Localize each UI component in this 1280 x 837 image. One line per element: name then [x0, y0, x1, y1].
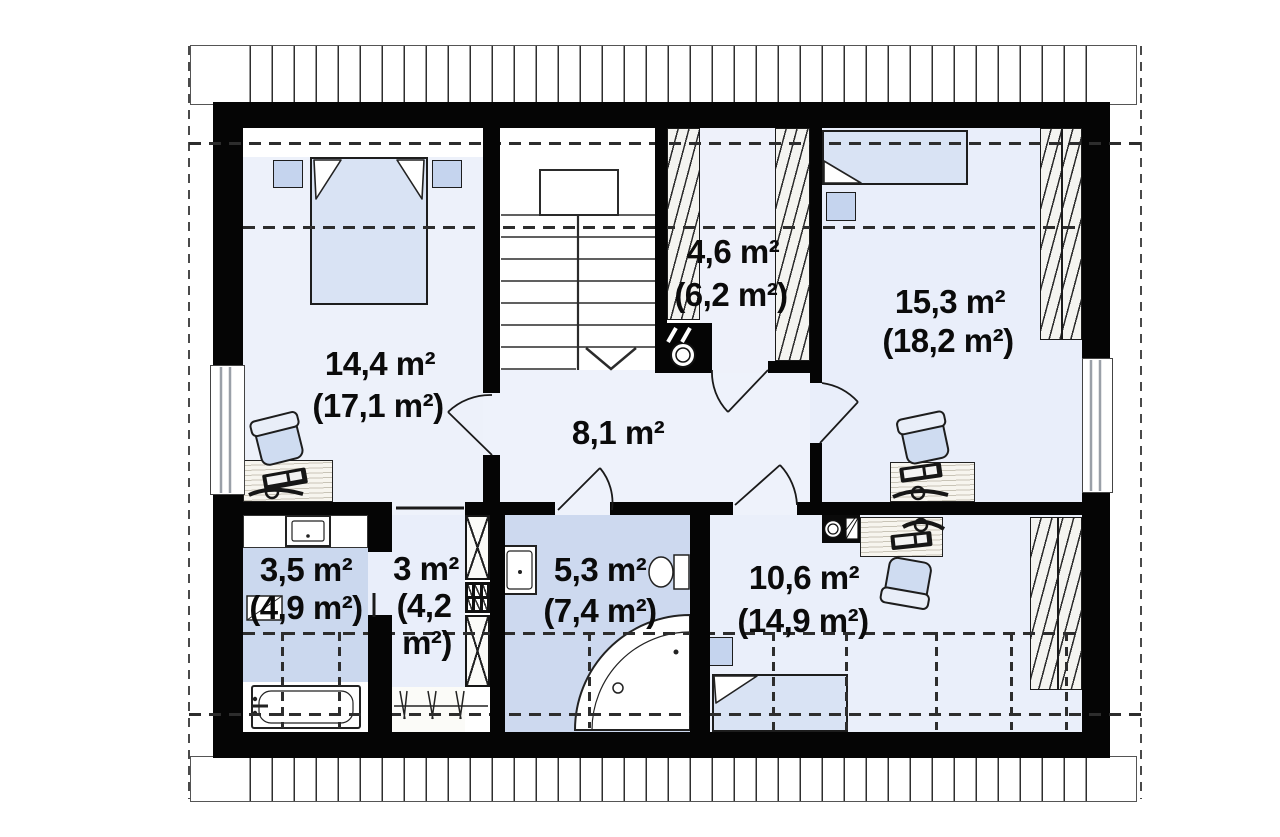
wardrobe-cabinet: [1030, 517, 1082, 690]
knee-wall-dashed-line: [588, 632, 591, 728]
wardrobe-shelving: [775, 128, 810, 361]
room-label-bathroom2-gross: (7,4 m²): [543, 592, 656, 630]
room-label-bathroom1-gross: (4,9 m²): [249, 589, 362, 627]
wardrobe-cabinet: [1040, 128, 1082, 340]
room-label-bedroom2-area: 15,3 m²: [895, 283, 1005, 321]
knee-wall-dashed-line: [845, 632, 848, 730]
room-label-wardrobe-area: 4,6 m²: [687, 233, 779, 271]
office-chair: [883, 555, 934, 604]
knee-wall-dashed-line: [281, 632, 284, 728]
single-bed: [712, 674, 848, 732]
nightstand: [273, 160, 303, 188]
room-label-hallway-area: 8,1 m²: [572, 414, 664, 452]
vanity-counter: [243, 515, 368, 548]
room-label-bedroom2-gross: (18,2 m²): [882, 322, 1013, 360]
knee-wall-dashed-line: [772, 632, 775, 730]
wardrobe-divider: [1057, 518, 1059, 689]
wall: [465, 502, 505, 515]
room-label-bathroom2-area: 5,3 m²: [554, 551, 646, 589]
roof-overhang-bottom: [190, 756, 1137, 802]
room-label-bedroom3-area: 10,6 m²: [749, 559, 859, 597]
knee-wall-dashed-line: [1010, 632, 1013, 730]
wall: [655, 128, 667, 323]
roof-outline-dashed-right: [1140, 46, 1142, 799]
closet-cabinet: [465, 615, 490, 687]
wardrobe-divider: [1061, 129, 1063, 339]
floor-door-gap-wardrobe: [712, 361, 768, 373]
wall: [797, 502, 1082, 515]
desk: [860, 517, 943, 557]
nightstand: [826, 192, 856, 221]
desk: [890, 462, 975, 502]
wall: [368, 615, 392, 732]
room-label-bedroom1-area: 14,4 m²: [325, 345, 435, 383]
floor-closet-rail-zone: [392, 687, 465, 732]
wall: [368, 515, 392, 552]
closet-cabinet: [465, 515, 490, 580]
window: [210, 365, 245, 495]
window: [1082, 358, 1113, 493]
floor-door-gap-bathroom2: [555, 502, 610, 515]
roof-outline-dashed-left: [188, 46, 190, 799]
wall: [243, 502, 392, 515]
wall: [810, 128, 822, 383]
office-chair: [899, 416, 951, 466]
floor-door-gap-bedroom3: [733, 502, 797, 515]
wall: [610, 502, 733, 515]
room-label-wardrobe-gross: (6,2 m²): [674, 276, 787, 314]
knee-wall-dashed-line: [1065, 632, 1068, 730]
wall: [690, 515, 710, 732]
wall: [655, 361, 712, 373]
floor-door-gap-bedroom1: [483, 393, 500, 455]
closet-shelf-unit: [465, 582, 490, 613]
kitchenette-unit: [822, 515, 860, 543]
double-bed: [310, 157, 428, 305]
roof-overhang-top: [190, 45, 1137, 105]
floor-door-gap-bathroom1: [368, 552, 392, 615]
knee-wall-dashed-line: [189, 713, 1141, 716]
single-bed: [822, 130, 968, 185]
room-label-closet-gross2: m²): [402, 624, 452, 662]
wall: [768, 361, 810, 373]
wall: [483, 455, 500, 502]
desk: [243, 460, 333, 502]
floor-door-gap-bedroom2: [810, 383, 822, 443]
room-label-closet-gross1: (4,2: [397, 587, 452, 625]
room-label-closet-area: 3 m²: [393, 550, 459, 588]
room-label-bedroom1-gross: (17,1 m²): [312, 387, 443, 425]
wall: [490, 515, 505, 732]
room-label-bedroom3-gross: (14,9 m²): [737, 602, 868, 640]
room-label-bathroom1-area: 3,5 m²: [260, 551, 352, 589]
roof-stripes: [229, 757, 1098, 801]
floor-plan: 14,4 m² (17,1 m²) 4,6 m² (6,2 m²) 15,3 m…: [0, 0, 1280, 837]
roof-stripes: [229, 46, 1098, 104]
knee-wall-dashed-line: [935, 632, 938, 730]
floor-door-gap-closet: [392, 502, 465, 515]
nightstand: [432, 160, 462, 188]
wall: [483, 128, 500, 393]
wall: [505, 502, 555, 515]
knee-wall-dashed-line: [338, 632, 341, 728]
